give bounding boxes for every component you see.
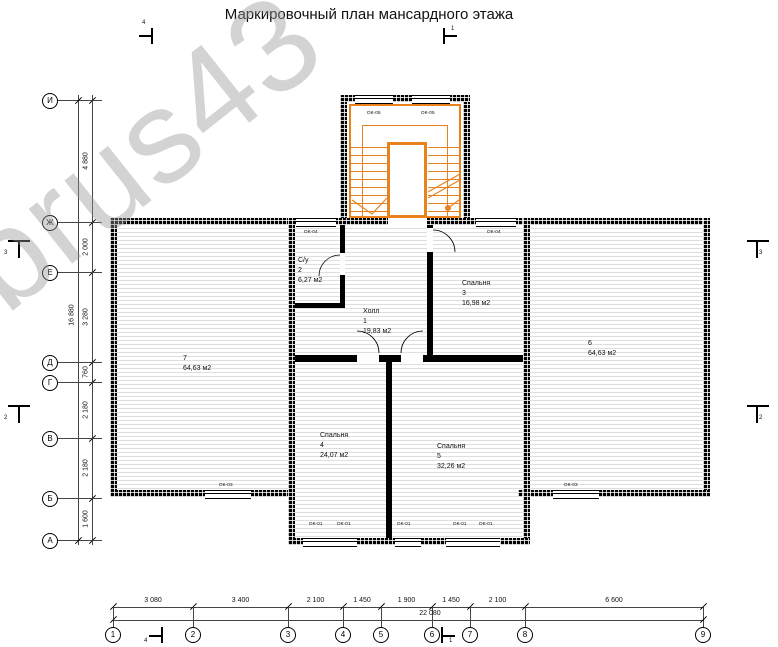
window-tag: ОК-05 xyxy=(367,110,381,115)
axis-leader xyxy=(58,498,102,499)
stair-flight-right xyxy=(428,147,461,217)
room-label-bed3: Спальня316,98 м2 xyxy=(462,279,490,308)
window-tag: ОК-01 xyxy=(479,521,493,526)
axis-bubble-col: 7 xyxy=(462,627,478,643)
room-label-bed5: Спальня532,26 м2 xyxy=(437,442,465,471)
axis-leader xyxy=(343,607,344,627)
axis-leader xyxy=(58,100,102,101)
window-bottom-1 xyxy=(303,538,357,547)
window-tag: ОК-01 xyxy=(453,521,467,526)
axis-bubble-row: Ж xyxy=(42,215,58,231)
dim-value: 6 600 xyxy=(605,597,623,604)
dim-line xyxy=(113,607,703,608)
main-wall-left xyxy=(110,218,117,497)
window-stair-left xyxy=(355,95,393,104)
window-tag: ОК-04 xyxy=(487,229,501,234)
window-tag: ОК-03 xyxy=(219,482,233,487)
axis-bubble-col: 5 xyxy=(373,627,389,643)
axis-bubble-col: 3 xyxy=(280,627,296,643)
room-label-bed4: Спальня424,07 м2 xyxy=(320,431,348,460)
window-wing-left xyxy=(205,490,251,499)
room-label-7: 764,63 м2 xyxy=(183,354,211,374)
stairwell-wall-right xyxy=(463,95,470,225)
dim-value: 2 180 xyxy=(83,401,90,419)
dim-value: 1 450 xyxy=(353,597,371,604)
axis-leader xyxy=(58,382,102,383)
window-tag: ОК-01 xyxy=(309,521,323,526)
stair-opening xyxy=(388,218,427,225)
axis-leader xyxy=(58,438,102,439)
window-top-right xyxy=(476,218,516,227)
axis-leader xyxy=(58,362,102,363)
floor-plan-canvas: Маркировочный план мансардного этажа xyxy=(0,0,778,647)
dim-total: 16 880 xyxy=(69,304,76,325)
stair-well xyxy=(387,142,427,218)
window-tag: ОК-04 xyxy=(304,229,318,234)
dim-value: 1 450 xyxy=(442,597,460,604)
axis-bubble-col: 1 xyxy=(105,627,121,643)
page-title: Маркировочный план мансардного этажа xyxy=(0,6,738,23)
room-6-floor xyxy=(530,225,703,490)
window-bottom-2 xyxy=(395,538,421,547)
axis-bubble-row: Б xyxy=(42,491,58,507)
room-label-bathroom: С/у26,27 м2 xyxy=(298,256,322,285)
axis-bubble-col: 6 xyxy=(424,627,440,643)
mid-block-wall-right xyxy=(523,218,530,545)
middle-block-floor xyxy=(295,225,523,538)
dim-line xyxy=(78,95,79,545)
wing-left-wall-bottom xyxy=(110,490,295,497)
axis-leader xyxy=(381,607,382,627)
window-tag: ОК-01 xyxy=(397,521,411,526)
wing-right-wall-bottom xyxy=(518,490,710,497)
axis-bubble-col: 2 xyxy=(185,627,201,643)
dim-value: 4 880 xyxy=(83,152,90,170)
dim-value: 1 900 xyxy=(398,597,416,604)
axis-bubble-row: Г xyxy=(42,375,58,391)
window-tag: ОК-05 xyxy=(421,110,435,115)
main-wall-right xyxy=(703,218,710,497)
dim-value: 2 000 xyxy=(83,238,90,256)
window-top-left xyxy=(296,218,336,227)
room-label-hall: Холл119,83 м2 xyxy=(363,307,391,336)
stairwell-wall-left xyxy=(340,95,347,225)
window-tag: ОК-03 xyxy=(564,482,578,487)
axis-bubble-col: 4 xyxy=(335,627,351,643)
dim-value: 3 280 xyxy=(83,308,90,326)
axis-leader xyxy=(470,607,471,627)
bathroom-door-opening xyxy=(340,253,345,275)
window-wing-right xyxy=(553,490,599,499)
dim-value: 2 100 xyxy=(307,597,325,604)
axis-bubble-row: В xyxy=(42,431,58,447)
bathroom-wall-bottom xyxy=(295,303,345,308)
window-stair-right xyxy=(412,95,450,104)
dim-line xyxy=(113,620,703,621)
axis-leader xyxy=(193,607,194,627)
axis-leader xyxy=(58,222,102,223)
axis-leader xyxy=(288,607,289,627)
axis-bubble-col: 8 xyxy=(517,627,533,643)
axis-leader xyxy=(58,272,102,273)
bed3-door-opening xyxy=(427,228,433,252)
mid-block-wall-left xyxy=(288,218,295,545)
dim-value: 760 xyxy=(83,366,90,378)
window-bottom-3 xyxy=(446,538,500,547)
dim-value: 1 600 xyxy=(83,510,90,528)
axis-bubble-col: 9 xyxy=(695,627,711,643)
bed5-door-opening xyxy=(401,355,423,362)
window-tag: ОК-01 xyxy=(337,521,351,526)
dim-value: 3 400 xyxy=(232,597,250,604)
dim-value: 3 080 xyxy=(144,597,162,604)
dim-line xyxy=(92,95,93,545)
room-label-6: 664,63 м2 xyxy=(588,339,616,359)
axis-bubble-row: А xyxy=(42,533,58,549)
bed4-bed5-wall xyxy=(386,362,392,538)
axis-bubble-row: Д xyxy=(42,355,58,371)
dim-value: 2 100 xyxy=(489,597,507,604)
dim-total: 22 080 xyxy=(419,610,440,617)
axis-bubble-row: И xyxy=(42,93,58,109)
axis-leader xyxy=(58,540,102,541)
stair-flight-left xyxy=(351,147,387,217)
axis-bubble-row: Е xyxy=(42,265,58,281)
bed4-door-opening xyxy=(357,355,379,362)
dim-value: 2 180 xyxy=(83,459,90,477)
axis-leader xyxy=(525,607,526,627)
